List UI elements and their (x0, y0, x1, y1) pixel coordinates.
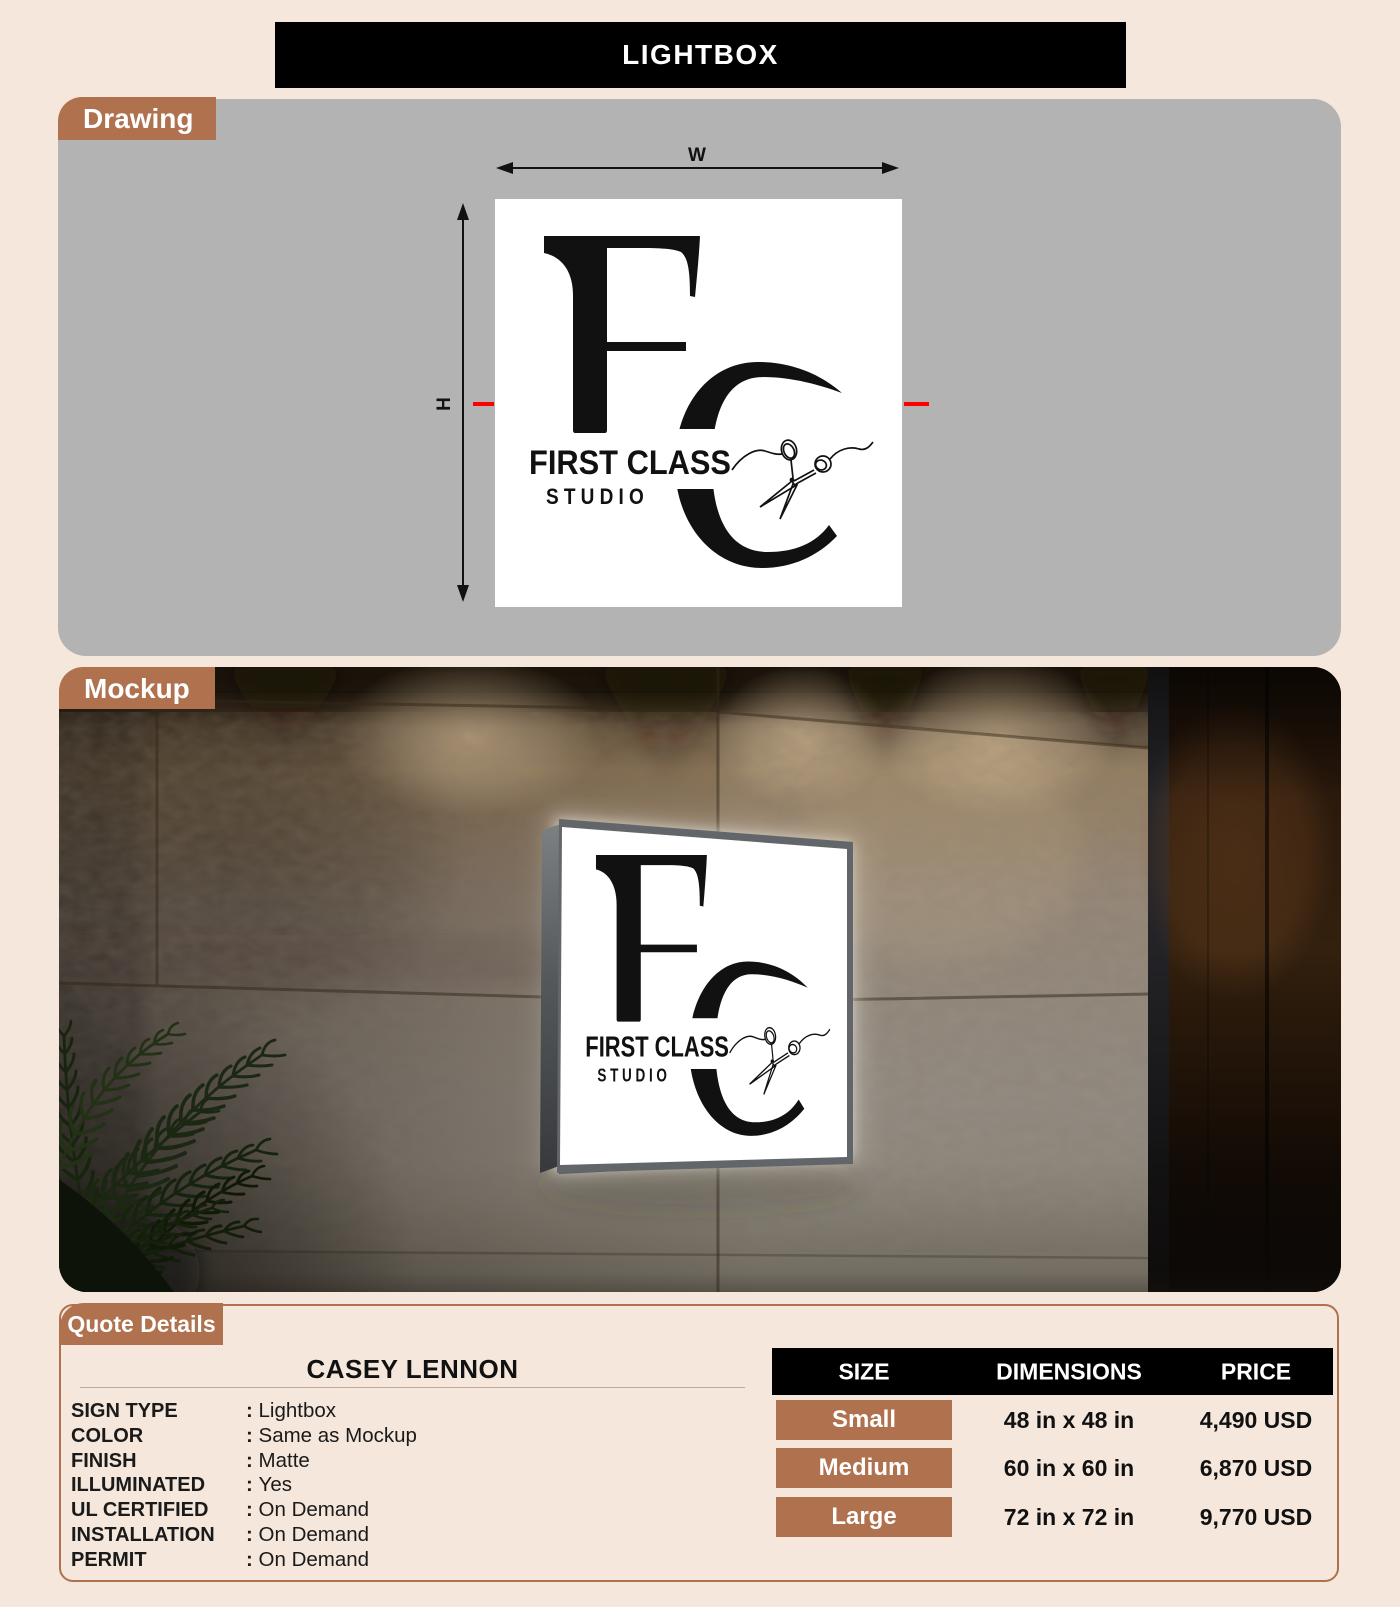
svg-text:H: H (434, 397, 455, 411)
svg-text:W: W (688, 145, 706, 166)
